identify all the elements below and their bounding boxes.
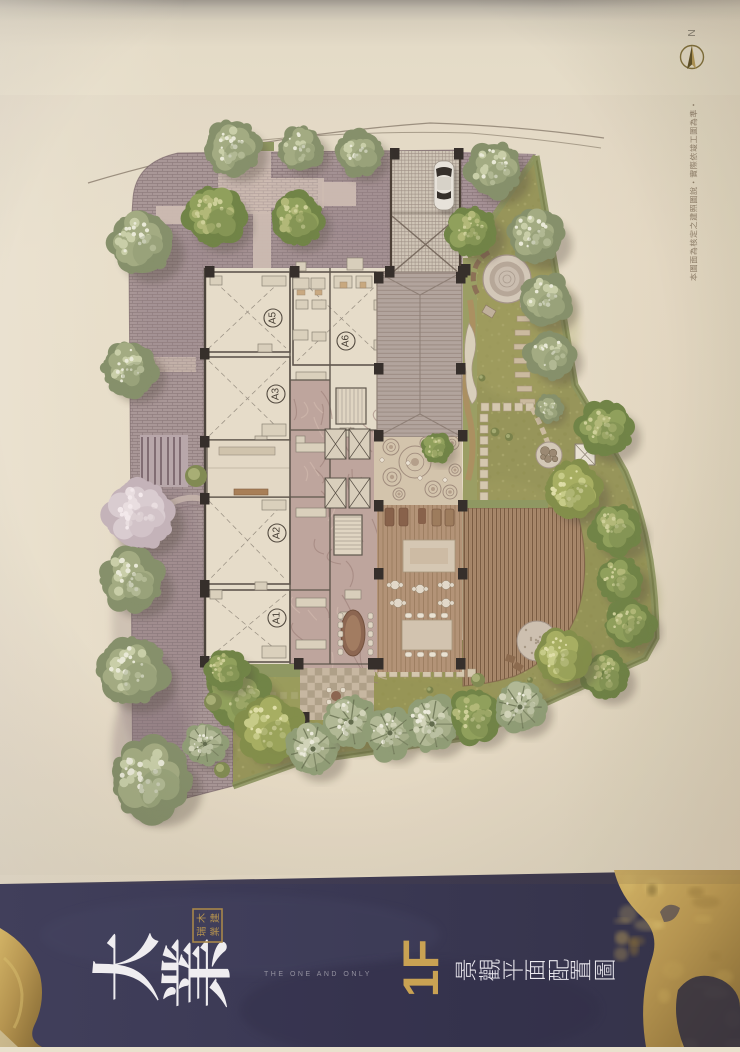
svg-text:1F: 1F (393, 939, 449, 997)
svg-text:THE ONE AND ONLY: THE ONE AND ONLY (264, 971, 372, 978)
